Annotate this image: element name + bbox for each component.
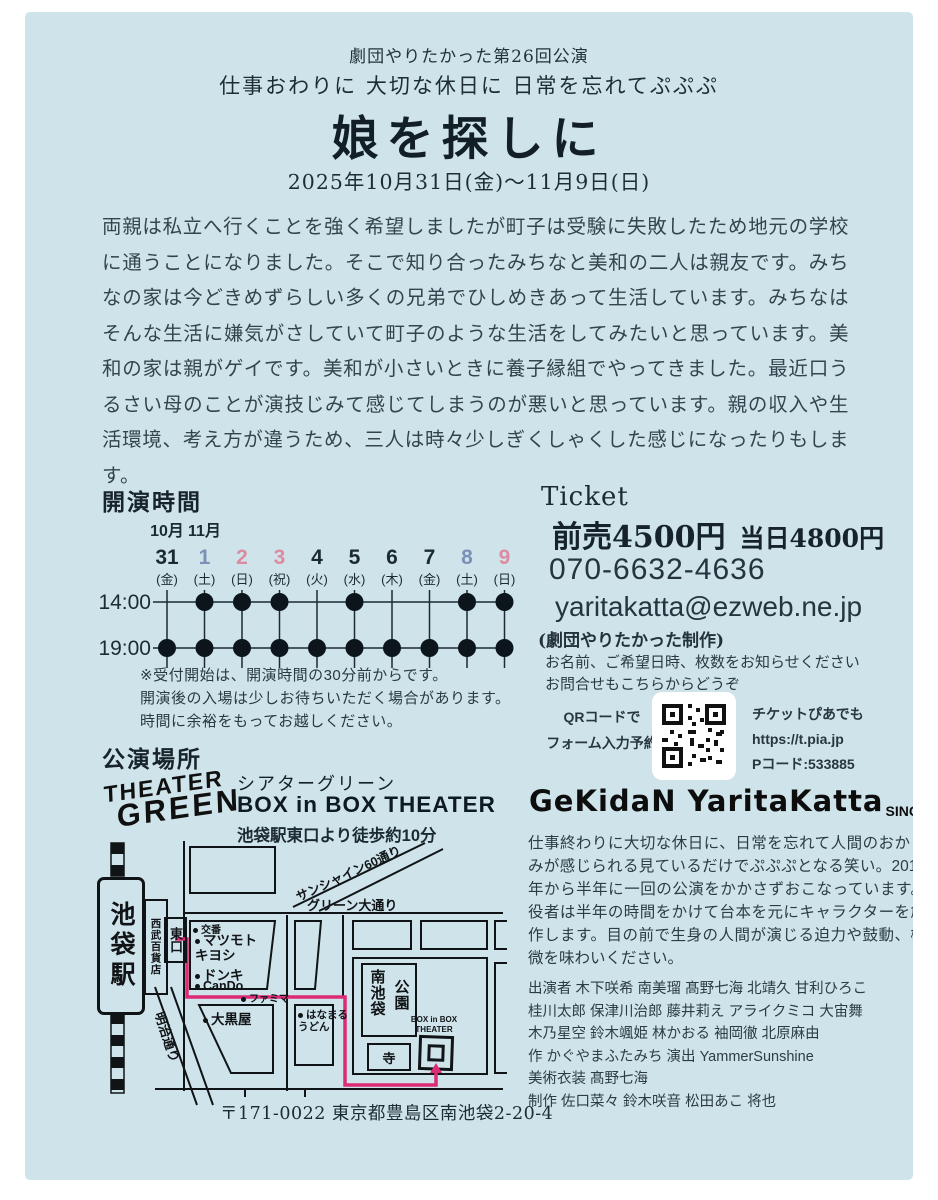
map-famima: ファミマ — [241, 990, 289, 1005]
play-title: 娘を探しに — [25, 100, 913, 169]
schedule-weekday: (土) — [194, 572, 216, 587]
produced-by-label: (劇団やりたかった制作) — [538, 626, 724, 651]
map-marker-dot — [195, 939, 200, 944]
qr-caption-left: QRコードで フォーム入力予約 — [537, 704, 667, 756]
map-daikokuya: 大黒屋 — [203, 1008, 252, 1028]
map-park-name-right: 南池袋 — [367, 969, 388, 1035]
schedule-dot-19 — [458, 639, 476, 657]
schedule-date-number: 5 — [349, 546, 361, 569]
schedule-weekday: (祝) — [269, 572, 291, 587]
flyer-page: { "header": { "production": "劇団やりたかった第26… — [0, 0, 938, 1200]
schedule-weekday: (日) — [231, 572, 253, 587]
door-price: 当日4800円 — [740, 524, 885, 553]
ticket-instruction-line: お名前、ご希望日時、枚数をお知らせください — [545, 652, 860, 674]
schedule-note-line: 開演後の入場は少しお待ちいただく場合があります。 — [140, 687, 511, 710]
map-marker-dot — [241, 997, 246, 1002]
pia-label: チケットぴあでも — [752, 702, 864, 727]
qr-caption-right: チケットぴあでも https://t.pia.jp Pコード:533885 — [752, 702, 864, 777]
company-logo: GeKidaN YaritaKattaSINCE2013 — [529, 784, 913, 818]
theater-green-logo: THEATER GREEN — [102, 765, 243, 833]
credits-line: 美術衣装 髙野七海 — [528, 1068, 913, 1091]
schedule-dot-14 — [196, 593, 214, 611]
schedule-dot-19 — [233, 639, 251, 657]
map-marker-dot — [203, 1018, 208, 1023]
schedule-weekday: (火) — [306, 572, 328, 587]
ticket-instructions: お名前、ご希望日時、枚数をお知らせください お問合せもこちらからどうぞ — [545, 652, 860, 696]
schedule-month-label: 11月 — [188, 522, 221, 540]
synopsis-paragraph: 両親は私立へ行くことを強く希望しましたが町子は受験に失敗したため地元の学校に通う… — [102, 210, 849, 494]
schedule-dot-19 — [421, 639, 439, 657]
map-ikebukuro-station: 池袋駅 — [97, 877, 145, 1015]
email-address: yaritakatta@ezweb.ne.jp — [555, 591, 862, 623]
company-since-label: SINCE2013 — [886, 803, 914, 819]
schedule-weekday: (日) — [494, 572, 516, 587]
qr-code-image — [652, 692, 736, 780]
schedule-dot-19 — [308, 639, 326, 657]
map-green-avenue: グリーン大通り — [307, 895, 397, 914]
schedule-dot-14 — [233, 593, 251, 611]
schedule-date-number: 8 — [461, 546, 473, 569]
schedule-dot-14 — [496, 593, 514, 611]
schedule-time-label: 14:00 — [98, 591, 151, 614]
schedule-date-number: 9 — [499, 546, 511, 569]
schedule-date-number: 6 — [386, 546, 398, 569]
schedule-weekday: (水) — [344, 572, 366, 587]
credits-line: 桂川太郎 保津川治郎 藤井莉え アライクミコ 大宙舞 — [528, 1001, 913, 1024]
schedule-weekday: (金) — [156, 572, 178, 587]
schedule-date-number: 4 — [311, 546, 323, 569]
production-label: 劇団やりたかった第26回公演 — [25, 42, 913, 67]
map-theater-label: BOX in BOX THEATER — [397, 1015, 471, 1034]
pia-pcode: Pコード:533885 — [752, 752, 864, 777]
company-logo-text: GeKidaN YaritaKatta — [529, 784, 884, 818]
credits-block: 出演者 木下咲希 南美瑠 髙野七海 北靖久 甘利ひろこ 桂川太郎 保津川治郎 藤… — [528, 978, 913, 1114]
map-matsumoto-kiyoshi: マツモト キヨシ — [195, 933, 257, 963]
credits-line: 制作 佐口菜々 鈴木咲音 松田あこ 将也 — [528, 1091, 913, 1114]
showtimes-heading: 開演時間 — [102, 483, 202, 517]
phone-number: 070-6632-4636 — [549, 553, 766, 587]
schedule-dot-19 — [346, 639, 364, 657]
schedule-time-label: 19:00 — [98, 637, 151, 660]
schedule-weekday: (金) — [419, 572, 441, 587]
credits-line: 作 かぐやまふたみち 演出 YammerSunshine — [528, 1046, 913, 1069]
ticket-prices: 前売4500円当日4800円 — [552, 512, 884, 556]
schedule-date-number: 2 — [236, 546, 248, 569]
company-about: 仕事終わりに大切な休日に、日常を忘れて人間のおかしみが感じられる見ているだけでぷ… — [528, 832, 913, 970]
schedule-dot-19 — [496, 639, 514, 657]
schedule-note-line: 時間に余裕をもってお越しください。 — [140, 710, 511, 733]
qr-caption-line: フォーム入力予約 — [537, 730, 667, 756]
schedule-date-number: 31 — [155, 546, 179, 569]
schedule-weekday: (木) — [381, 572, 403, 587]
schedule-dot-19 — [196, 639, 214, 657]
schedule-date-number: 7 — [424, 546, 436, 569]
qr-caption-line: QRコードで — [537, 704, 667, 730]
schedule-date-number: 1 — [199, 546, 211, 569]
ticket-heading: Ticket — [541, 482, 629, 512]
schedule-notes: ※受付開始は、開演時間の30分前からです。 開演後の入場は少しお待ちいただく場合… — [140, 664, 511, 733]
schedule-month-label: 10月 — [150, 522, 184, 540]
schedule-dot-14 — [271, 593, 289, 611]
map-marker-dot — [195, 984, 200, 989]
schedule-dot-19 — [158, 639, 176, 657]
venue-map: 池袋駅 西武百貨店 東口 サンシャイン60通り グリーン大通り 明治通り 交番 … — [95, 841, 507, 1133]
schedule-grid-svg: 10月11月14:0019:0031(金)1(土)2(日)3(祝)4(火)5(水… — [97, 518, 517, 676]
map-cando: CanDo — [195, 979, 243, 993]
schedule-date-number: 3 — [274, 546, 286, 569]
venue-name-en: BOX in BOX THEATER — [237, 792, 496, 818]
map-east-exit: 東口 — [164, 917, 187, 963]
map-hanamaru-udon: はなまる うどん — [298, 1010, 348, 1033]
tagline: 仕事おわりに 大切な休日に 日常を忘れてぷぷぷ — [25, 70, 913, 100]
venue-address: 〒171-0022 東京都豊島区南池袋2-20-4 — [220, 1100, 553, 1125]
schedule-note-line: ※受付開始は、開演時間の30分前からです。 — [140, 664, 511, 687]
advance-price: 前売4500円 — [552, 520, 726, 555]
schedule-dot-14 — [346, 593, 364, 611]
run-dates: 2025年10月31日(金)〜11月9日(日) — [25, 165, 913, 195]
schedule-dot-14 — [458, 593, 476, 611]
schedule-weekday: (土) — [456, 572, 478, 587]
schedule-grid: 10月11月14:0019:0031(金)1(土)2(日)3(祝)4(火)5(水… — [97, 518, 517, 676]
schedule-dot-19 — [383, 639, 401, 657]
credits-line: 出演者 木下咲希 南美瑠 髙野七海 北靖久 甘利ひろこ — [528, 978, 913, 1001]
map-marker-dot — [298, 1013, 303, 1018]
credits-line: 木乃星空 鈴木颯姫 林かおる 袖岡徹 北原麻由 — [528, 1023, 913, 1046]
pia-url: https://t.pia.jp — [752, 727, 864, 752]
flyer: 劇団やりたかった第26回公演 仕事おわりに 大切な休日に 日常を忘れてぷぷぷ 娘… — [25, 12, 913, 1180]
schedule-dot-19 — [271, 639, 289, 657]
qr-code-svg — [662, 704, 726, 768]
map-temple: 寺 — [367, 1043, 411, 1071]
